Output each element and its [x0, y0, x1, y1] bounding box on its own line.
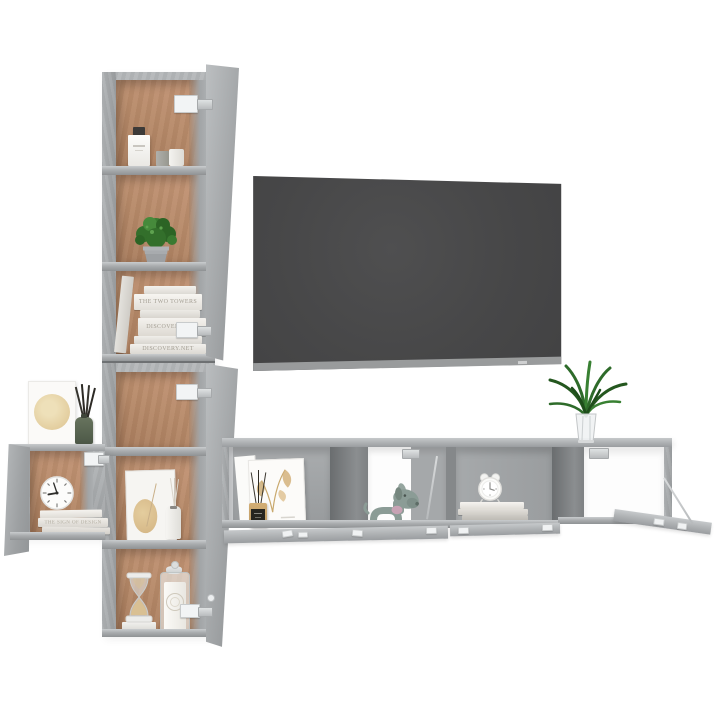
potted-plant	[130, 214, 182, 264]
label-line	[255, 517, 261, 518]
hourglass	[124, 572, 154, 624]
alarm-clock	[475, 472, 505, 504]
tv	[250, 172, 565, 374]
door-hinge-arm	[198, 607, 213, 617]
moon-circle	[34, 394, 70, 430]
reed-stick	[251, 472, 257, 506]
green-diffuser-bottle	[75, 417, 93, 444]
book-spine-text: DISCOVERY.NET	[130, 346, 206, 352]
diffuser-bottle-white	[166, 506, 181, 539]
door-hinge	[176, 384, 198, 400]
bench-flap-middle	[450, 523, 560, 537]
door-knob	[207, 594, 215, 602]
flap-hinge-fitting	[426, 527, 437, 534]
flap-hinge-fitting	[458, 527, 469, 534]
bench-left-edge	[222, 447, 229, 520]
door-hinge-arm	[197, 388, 212, 398]
small-book-with-text: THE SIGN OF DESIGN	[38, 518, 108, 527]
flap-hinge-fitting	[653, 518, 665, 526]
flap-hinge-fitting	[352, 529, 364, 537]
door-hinge-arm	[98, 455, 110, 464]
compartment-inner-wall	[189, 175, 206, 262]
perfume-label-line	[135, 150, 143, 151]
tall-upper-shelf-2	[102, 262, 215, 271]
framed-moon-print	[28, 381, 76, 446]
tv-screen	[250, 172, 565, 374]
compartment-inner-wall	[189, 80, 206, 166]
book	[140, 310, 200, 318]
door-hinge-arm	[197, 99, 213, 110]
tall-lower-bottom	[102, 629, 215, 637]
diffuser-neck	[170, 506, 177, 509]
apothecary-candle-jar	[160, 572, 190, 634]
perfume-bottle	[128, 135, 150, 166]
door-hinge	[180, 604, 200, 618]
compartment-hinge	[589, 448, 609, 459]
book-discovery-2: DISCOVERY.NET	[130, 344, 206, 354]
bottle-neck	[81, 414, 87, 418]
flap-hinge-fitting	[542, 524, 553, 531]
compartment-inner-wall	[189, 456, 206, 540]
tall-lower-shelf-1	[102, 447, 215, 456]
book-two-towers: THE TWO TOWERS	[134, 294, 202, 310]
tv-logo	[518, 361, 527, 364]
reed-diffuser-sticks	[168, 478, 180, 508]
small-cabinet-bottom	[10, 532, 105, 540]
flap-hinge-fitting	[298, 532, 308, 538]
door-hinge	[176, 322, 198, 338]
reed-stick	[258, 470, 259, 506]
flap-hinge-fitting	[677, 522, 688, 530]
candle-jar-white	[169, 149, 184, 166]
wall-clock	[38, 474, 76, 512]
tall-upper-shelf-1	[102, 166, 215, 175]
book-spine-text: THE SIGN OF DESIGN	[38, 520, 108, 525]
print-art-blob	[133, 499, 158, 534]
plant-foliage	[135, 217, 177, 248]
tall-lower-shelf-2	[102, 540, 215, 549]
vase-plant	[538, 358, 634, 444]
jar-knob	[171, 561, 179, 569]
wood-diffuser-sticks	[252, 472, 264, 506]
jar-label-ring	[170, 597, 180, 607]
door-hinge-arm	[197, 326, 212, 336]
plant-pot	[143, 247, 169, 263]
door-hinge	[174, 95, 198, 113]
perfume-label-line	[133, 145, 145, 147]
compartment-hinge	[402, 449, 420, 459]
plant-fronds	[550, 362, 626, 416]
label-line	[254, 513, 262, 514]
book-spine-text: THE TWO TOWERS	[134, 299, 202, 305]
tall-cabinet-upper-left-panel	[102, 72, 116, 362]
flap-hinge-fitting	[281, 529, 293, 538]
book	[144, 286, 196, 294]
book	[460, 502, 524, 509]
candle-jar-grey	[156, 151, 169, 166]
bench-divider-3	[552, 447, 584, 520]
product-photo-canvas: THE TWO TOWERS DISCOVERY.NET DISCOVERY.N…	[0, 0, 720, 720]
bench-divider-2	[446, 447, 456, 520]
